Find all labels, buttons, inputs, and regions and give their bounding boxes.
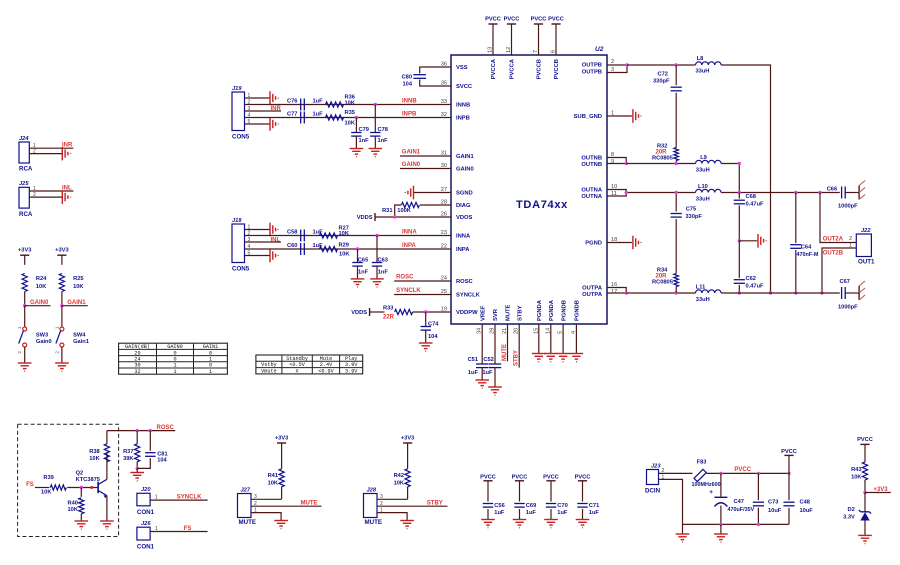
svg-text:4: 4: [248, 113, 251, 119]
svg-text:22R: 22R: [383, 315, 395, 321]
svg-text:1: 1: [662, 474, 665, 480]
svg-text:1nF: 1nF: [378, 138, 389, 144]
svg-text:0.47uF: 0.47uF: [746, 201, 765, 207]
svg-text:1000pF: 1000pF: [838, 305, 858, 311]
svg-text:C78: C78: [378, 127, 388, 133]
svg-text:Standby: Standby: [286, 356, 308, 362]
svg-text:PVCC: PVCC: [781, 449, 797, 455]
svg-text:10K: 10K: [339, 252, 350, 258]
svg-text:J28: J28: [367, 488, 377, 494]
svg-text:SYNCLK: SYNCLK: [456, 293, 481, 299]
svg-text:2.4V: 2.4V: [320, 362, 333, 368]
svg-text:1uF: 1uF: [482, 370, 493, 376]
svg-text:C71: C71: [589, 503, 599, 509]
svg-text:R43: R43: [851, 467, 861, 473]
svg-text:INL: INL: [62, 186, 72, 192]
svg-text:C62: C62: [746, 276, 756, 282]
svg-text:1uF: 1uF: [313, 112, 324, 118]
svg-text:10K: 10K: [345, 101, 356, 107]
svg-text:ROSC: ROSC: [456, 279, 474, 285]
svg-text:C65: C65: [358, 258, 368, 264]
svg-text:PVCCB: PVCCB: [554, 59, 560, 79]
svg-text:PVCC: PVCC: [857, 437, 873, 443]
svg-text:100K: 100K: [397, 208, 411, 214]
svg-text:ROSC: ROSC: [157, 425, 175, 431]
svg-text:C64: C64: [801, 245, 812, 251]
svg-text:VDOS: VDOS: [456, 215, 473, 221]
svg-text:1nF: 1nF: [358, 269, 369, 275]
svg-text:GAIN1: GAIN1: [456, 154, 474, 160]
svg-text:+3V3: +3V3: [873, 487, 888, 493]
svg-text:C51: C51: [468, 357, 478, 363]
svg-text:VDDS: VDDS: [351, 310, 367, 316]
svg-text:C52: C52: [483, 357, 493, 363]
svg-text:R42: R42: [394, 473, 404, 479]
svg-text:RC0805: RC0805: [652, 156, 673, 162]
svg-text:J19: J19: [232, 86, 242, 92]
svg-text:L11: L11: [696, 285, 706, 291]
svg-text:C47: C47: [734, 499, 744, 505]
svg-text:OUT1: OUT1: [858, 259, 875, 266]
svg-text:J24: J24: [19, 136, 29, 142]
svg-text:10K: 10K: [73, 284, 84, 290]
svg-text:Vmute: Vmute: [261, 369, 277, 375]
svg-text:1: 1: [17, 326, 22, 329]
svg-text:1uF: 1uF: [589, 510, 600, 516]
svg-text:RCA: RCA: [19, 211, 33, 218]
svg-text:3: 3: [248, 237, 251, 243]
svg-text:104: 104: [157, 458, 167, 464]
svg-text:PGNDA: PGNDA: [537, 299, 543, 321]
svg-text:PGND: PGND: [585, 241, 602, 247]
svg-text:C77: C77: [287, 112, 297, 118]
svg-text:2: 2: [380, 501, 383, 507]
svg-text:OUTPB: OUTPB: [582, 70, 602, 76]
svg-text:33uH: 33uH: [696, 197, 710, 203]
svg-text:Gain1: Gain1: [73, 339, 89, 345]
svg-text:PVCCB: PVCCB: [537, 59, 543, 79]
svg-text:Vstby: Vstby: [261, 362, 277, 368]
svg-text:R35: R35: [345, 110, 355, 116]
svg-text:OUT2B: OUT2B: [823, 251, 844, 257]
svg-text:SW4: SW4: [73, 333, 86, 339]
svg-text:CON1: CON1: [137, 544, 155, 551]
svg-text:0: 0: [209, 350, 212, 356]
svg-text:INNA: INNA: [456, 234, 471, 240]
svg-text:470uF/35V: 470uF/35V: [728, 507, 755, 513]
svg-text:R38: R38: [89, 449, 99, 455]
svg-text:30: 30: [134, 363, 140, 369]
svg-text:PVCC: PVCC: [512, 474, 528, 480]
svg-text:10K: 10K: [89, 456, 100, 462]
svg-text:CON5: CON5: [232, 134, 250, 141]
svg-text:RC0805: RC0805: [652, 280, 673, 286]
svg-text:PGNDB: PGNDB: [561, 300, 567, 321]
svg-text:L9: L9: [700, 155, 707, 161]
svg-text:OUTNB: OUTNB: [581, 156, 602, 162]
svg-text:32: 32: [134, 369, 140, 375]
svg-text:1: 1: [54, 326, 59, 329]
svg-text:100MHz600: 100MHz600: [692, 482, 721, 488]
svg-text:24: 24: [134, 357, 140, 363]
svg-text:PGNDB: PGNDB: [575, 300, 581, 321]
svg-text:5: 5: [248, 251, 251, 257]
svg-text:PVCCA: PVCCA: [491, 58, 497, 79]
svg-text:SGND: SGND: [456, 191, 473, 197]
svg-text:2: 2: [33, 192, 36, 198]
svg-text:2: 2: [17, 351, 22, 354]
svg-text:SW3: SW3: [36, 333, 48, 339]
svg-text:OUTNA: OUTNA: [581, 194, 602, 200]
svg-text:L8: L8: [697, 56, 704, 62]
svg-text:10K: 10K: [851, 475, 862, 481]
svg-text:SVR: SVR: [493, 308, 499, 321]
svg-text:R25: R25: [73, 276, 83, 282]
svg-text:470nF-M: 470nF-M: [797, 252, 819, 258]
svg-text:INPA: INPA: [456, 247, 470, 253]
svg-text:1nF: 1nF: [378, 269, 389, 275]
svg-text:J22: J22: [861, 228, 871, 234]
svg-text:Gain0: Gain0: [36, 339, 52, 345]
svg-text:INL: INL: [271, 238, 281, 244]
svg-text:C79: C79: [359, 127, 369, 133]
svg-text:C75: C75: [686, 207, 696, 213]
svg-text:STBY: STBY: [514, 350, 520, 366]
svg-text:J18: J18: [232, 218, 242, 224]
svg-text:1: 1: [173, 363, 176, 369]
svg-text:39K: 39K: [123, 456, 134, 462]
svg-text:R40: R40: [68, 501, 78, 507]
svg-text:J27: J27: [241, 488, 251, 494]
svg-text:MUTE: MUTE: [301, 500, 318, 506]
svg-text:STBY: STBY: [427, 500, 443, 506]
svg-text:10K: 10K: [345, 121, 356, 127]
svg-text:C73: C73: [768, 500, 778, 506]
svg-text:J20: J20: [141, 487, 151, 493]
svg-text:C56: C56: [494, 503, 504, 509]
svg-text:2: 2: [662, 468, 665, 474]
svg-text:KTC3875: KTC3875: [76, 477, 100, 483]
svg-text:SYNCLK: SYNCLK: [177, 495, 202, 501]
svg-text:1: 1: [254, 508, 257, 514]
svg-text:1uF: 1uF: [313, 99, 324, 105]
svg-text:L10: L10: [698, 184, 708, 190]
svg-text:SYNCLK: SYNCLK: [396, 288, 421, 294]
svg-text:1uF: 1uF: [526, 510, 537, 516]
svg-text:DIAG: DIAG: [456, 203, 471, 209]
svg-text:MUTE: MUTE: [502, 344, 508, 361]
svg-text:Q2: Q2: [76, 471, 84, 477]
svg-text:10K: 10K: [268, 481, 279, 487]
svg-text:3.3V: 3.3V: [843, 515, 855, 521]
svg-text:C76: C76: [287, 99, 297, 105]
svg-text:Mute: Mute: [320, 356, 332, 362]
svg-text:PVCC: PVCC: [480, 474, 496, 480]
svg-text:INPB: INPB: [456, 116, 470, 122]
svg-text:10uF: 10uF: [768, 508, 782, 514]
svg-text:1: 1: [155, 526, 158, 532]
svg-text:GAIN0: GAIN0: [402, 162, 421, 168]
svg-text:GAIN(dB): GAIN(dB): [125, 344, 150, 350]
svg-text:OUTPA: OUTPA: [582, 292, 603, 298]
svg-text:INNA: INNA: [402, 230, 417, 236]
svg-text:PGNDA: PGNDA: [549, 299, 555, 321]
svg-text:VDDS: VDDS: [357, 215, 373, 221]
svg-text:10K: 10K: [36, 284, 47, 290]
svg-text:5: 5: [248, 119, 251, 125]
svg-text:VDDPW: VDDPW: [456, 310, 478, 316]
svg-text:C66: C66: [827, 187, 837, 193]
svg-text:330pF: 330pF: [685, 214, 702, 220]
svg-text:1uF: 1uF: [494, 510, 505, 516]
svg-text:J25: J25: [19, 181, 29, 187]
svg-text:10K: 10K: [41, 490, 52, 496]
svg-text:GAIN0: GAIN0: [167, 344, 183, 350]
svg-text:F83: F83: [697, 460, 707, 466]
svg-text:U2: U2: [595, 46, 604, 53]
svg-text:3.9V: 3.9V: [345, 362, 358, 368]
svg-text:INPA: INPA: [402, 243, 417, 249]
svg-text:OUT2A: OUT2A: [823, 237, 844, 243]
svg-text:<0.5V: <0.5V: [289, 362, 305, 368]
svg-text:CON1: CON1: [137, 509, 155, 516]
svg-text:10K: 10K: [394, 481, 405, 487]
svg-text:2: 2: [248, 100, 251, 106]
svg-text:C68: C68: [746, 194, 756, 200]
svg-text:FS: FS: [26, 482, 34, 488]
svg-text:C69: C69: [526, 503, 536, 509]
svg-text:4: 4: [248, 244, 251, 250]
svg-text:PVCCA: PVCCA: [510, 58, 516, 79]
svg-text:2: 2: [254, 501, 257, 507]
svg-text:OUTNA: OUTNA: [581, 188, 602, 194]
svg-text:GAIN0: GAIN0: [456, 167, 474, 173]
svg-text:MUTE: MUTE: [365, 519, 383, 526]
svg-text:0: 0: [173, 350, 176, 356]
svg-text:PVCC: PVCC: [548, 17, 564, 23]
svg-text:20: 20: [134, 350, 140, 356]
svg-text:OUTNB: OUTNB: [581, 162, 602, 168]
svg-text:2: 2: [849, 236, 852, 242]
svg-text:R37: R37: [123, 449, 133, 455]
svg-text:0.47uF: 0.47uF: [746, 283, 765, 289]
svg-text:GAIN1: GAIN1: [203, 344, 219, 350]
svg-text:PVCC: PVCC: [734, 467, 751, 473]
svg-text:330pF: 330pF: [653, 79, 670, 85]
svg-text:PVCC: PVCC: [485, 17, 501, 23]
svg-text:3: 3: [380, 494, 383, 500]
svg-text:10K: 10K: [339, 231, 350, 237]
svg-text:+3V3: +3V3: [18, 247, 31, 253]
svg-text:1000pF: 1000pF: [838, 204, 858, 210]
svg-text:10K: 10K: [68, 507, 79, 513]
svg-text:MUTE: MUTE: [506, 304, 512, 321]
svg-text:R29: R29: [339, 243, 349, 249]
svg-text:INPB: INPB: [402, 112, 417, 118]
svg-text:20R: 20R: [655, 273, 667, 279]
svg-text:C80: C80: [402, 75, 412, 81]
svg-text:OUTPA: OUTPA: [582, 286, 603, 292]
svg-text:33uH: 33uH: [696, 168, 710, 174]
svg-text:1nF: 1nF: [359, 138, 370, 144]
svg-text:104: 104: [403, 82, 413, 88]
svg-text:33uH: 33uH: [696, 297, 710, 303]
svg-text:ROSC: ROSC: [396, 275, 414, 281]
svg-text:C58: C58: [287, 230, 297, 236]
svg-text:1: 1: [380, 508, 383, 514]
svg-text:FS: FS: [184, 526, 192, 532]
svg-text:C48: C48: [800, 500, 810, 506]
svg-text:INR: INR: [62, 143, 73, 149]
svg-text:0: 0: [209, 363, 212, 369]
svg-text:VSS: VSS: [456, 65, 468, 71]
svg-text:<0.9V: <0.9V: [318, 369, 334, 375]
svg-text:1uF: 1uF: [557, 510, 568, 516]
svg-text:D2: D2: [848, 507, 855, 513]
svg-text:R24: R24: [36, 276, 47, 282]
svg-text:C70: C70: [557, 503, 567, 509]
svg-text:2: 2: [611, 59, 614, 65]
svg-text:C74: C74: [428, 322, 439, 328]
svg-text:SVCC: SVCC: [456, 84, 473, 90]
svg-text:R39: R39: [43, 475, 53, 481]
svg-text:2: 2: [248, 231, 251, 237]
svg-text:PVCC: PVCC: [531, 17, 547, 23]
svg-text:33uH: 33uH: [696, 69, 710, 75]
svg-text:TDA74xx: TDA74xx: [516, 199, 568, 211]
svg-text:3: 3: [248, 106, 251, 112]
svg-text:R33: R33: [383, 306, 393, 312]
svg-text:INNB: INNB: [402, 99, 417, 105]
svg-text:MUTE: MUTE: [239, 519, 257, 526]
svg-text:PVCC: PVCC: [543, 474, 559, 480]
svg-text:2: 2: [33, 149, 36, 155]
svg-text:GAIN1: GAIN1: [67, 300, 86, 306]
svg-text:OUTPB: OUTPB: [582, 63, 602, 69]
svg-text:C67: C67: [840, 279, 850, 285]
svg-text:INR: INR: [271, 106, 282, 112]
svg-text:SUB_GND: SUB_GND: [574, 114, 602, 120]
svg-text:0: 0: [173, 357, 176, 363]
svg-text:VREF: VREF: [480, 305, 486, 321]
svg-text:2: 2: [54, 351, 59, 354]
svg-text:17: 17: [611, 289, 617, 295]
svg-text:GAIN1: GAIN1: [402, 150, 421, 156]
svg-text:1: 1: [209, 357, 212, 363]
svg-text:GAIN0: GAIN0: [30, 300, 49, 306]
svg-text:R31: R31: [382, 208, 392, 214]
svg-text:1: 1: [849, 243, 852, 249]
svg-text:1: 1: [155, 495, 158, 501]
svg-text:+3V3: +3V3: [275, 436, 288, 442]
svg-text:1: 1: [248, 93, 251, 99]
svg-text:1uF: 1uF: [468, 370, 479, 376]
svg-text:C63: C63: [378, 258, 388, 264]
svg-text:10uF: 10uF: [800, 508, 814, 514]
svg-text:C60: C60: [287, 243, 297, 249]
svg-text:RCA: RCA: [19, 166, 33, 173]
svg-text:+3V3: +3V3: [401, 436, 414, 442]
svg-text:R41: R41: [268, 473, 278, 479]
svg-text:J23: J23: [651, 464, 661, 470]
svg-text:INNB: INNB: [456, 103, 470, 109]
svg-text:+3V3: +3V3: [55, 247, 68, 253]
svg-text:1: 1: [209, 369, 212, 375]
svg-text:3: 3: [254, 494, 257, 500]
svg-text:CON5: CON5: [232, 266, 250, 273]
svg-text:1: 1: [173, 369, 176, 375]
svg-text:+: +: [709, 489, 713, 496]
svg-text:Play: Play: [345, 356, 357, 362]
svg-text:C72: C72: [658, 72, 668, 78]
svg-text:PVCC: PVCC: [575, 474, 591, 480]
svg-text:9: 9: [611, 159, 614, 165]
svg-text:PVCC: PVCC: [504, 17, 520, 23]
svg-text:104: 104: [428, 334, 438, 340]
svg-text:J26: J26: [141, 521, 151, 527]
svg-text:DCIN: DCIN: [645, 488, 661, 495]
svg-text:3.9V: 3.9V: [345, 369, 358, 375]
svg-text:STBY: STBY: [517, 305, 523, 321]
